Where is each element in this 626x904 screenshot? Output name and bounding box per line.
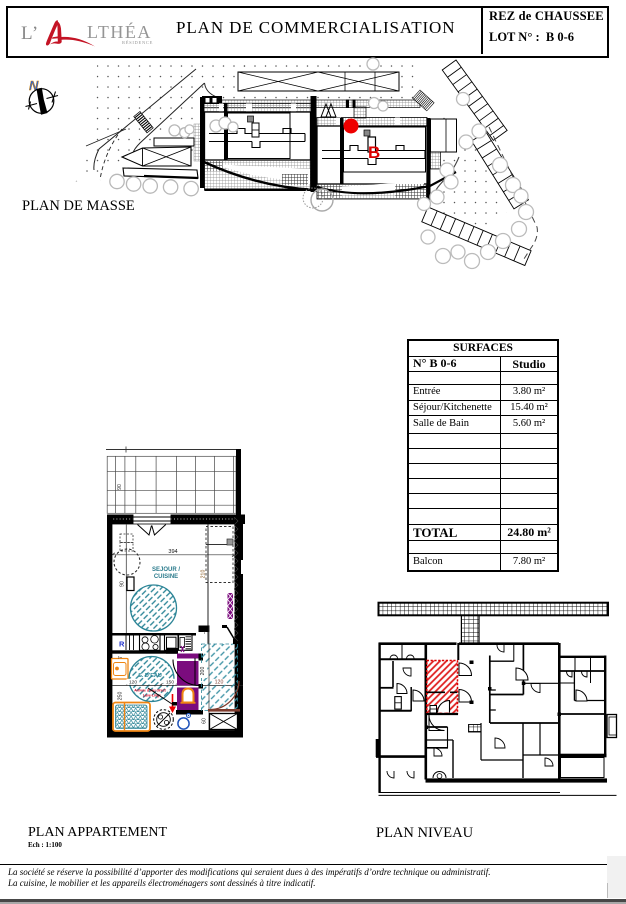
svg-text:CUISINE: CUISINE: [154, 574, 178, 580]
svg-text:90: 90: [120, 581, 126, 587]
svg-text:60: 60: [202, 718, 208, 724]
svg-text:7: 7: [118, 656, 124, 659]
svg-text:B: B: [368, 143, 380, 162]
svg-text:90: 90: [117, 484, 123, 490]
svg-text:120: 120: [215, 680, 224, 686]
svg-text:394: 394: [168, 549, 177, 555]
svg-text:120: 120: [129, 680, 137, 686]
svg-text:250: 250: [118, 692, 124, 701]
svg-text:SEJOUR /: SEJOUR /: [152, 567, 180, 573]
svg-text:200: 200: [200, 667, 206, 676]
svg-text:S. D'EAU: S. D'EAU: [138, 673, 162, 679]
svg-text:7: 7: [203, 630, 206, 636]
svg-text:150: 150: [166, 680, 174, 686]
svg-text:R: R: [119, 640, 125, 649]
svg-text:210: 210: [201, 570, 207, 579]
